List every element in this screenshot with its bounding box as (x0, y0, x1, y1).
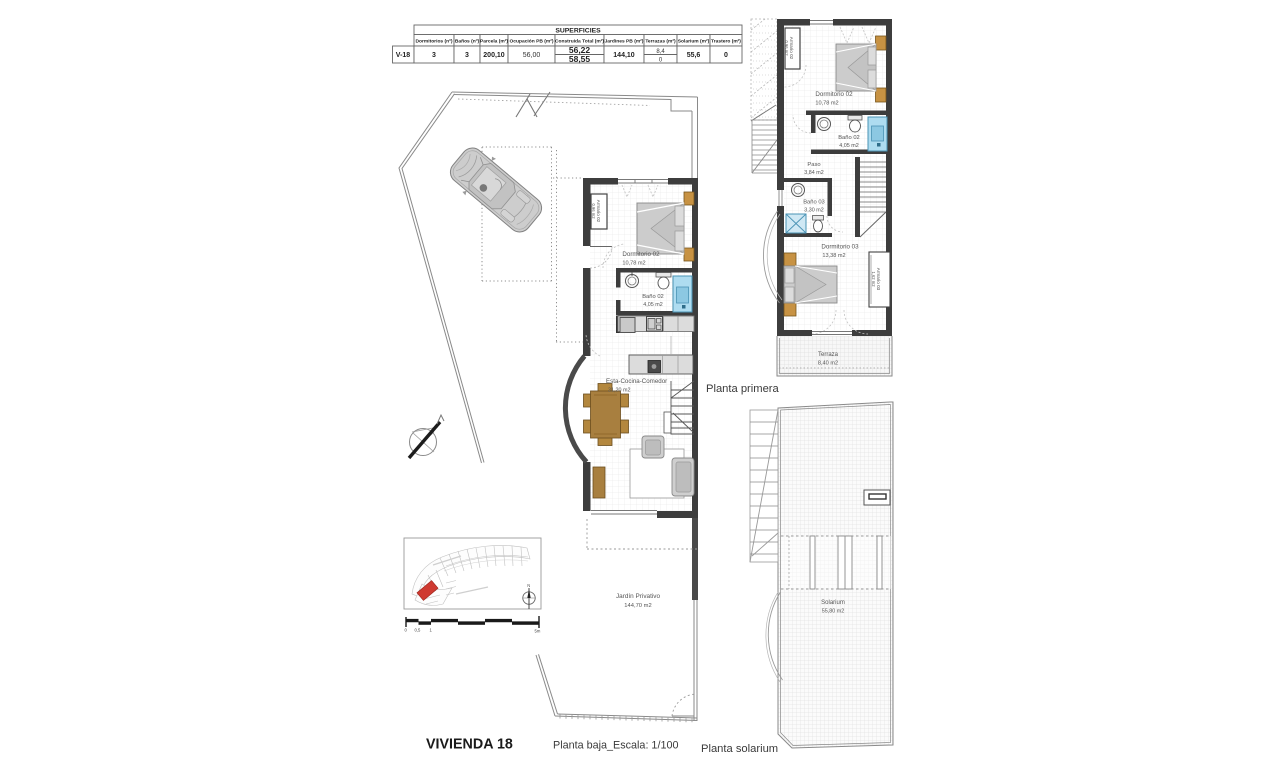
svg-text:Dormitorio 02: Dormitorio 02 (815, 91, 853, 98)
svg-text:8,4: 8,4 (656, 49, 665, 55)
svg-text:3,30 m2: 3,30 m2 (804, 208, 823, 214)
svg-text:Baños (nº): Baños (nº) (455, 39, 480, 45)
svg-text:Baño 03: Baño 03 (803, 200, 825, 206)
svg-text:Paso: Paso (807, 162, 820, 168)
svg-text:3,84 m2: 3,84 m2 (804, 170, 823, 176)
svg-text:Parcela (m²): Parcela (m²) (480, 39, 508, 45)
svg-text:Jardines PB (m²): Jardines PB (m²) (605, 39, 644, 45)
svg-text:56,00: 56,00 (523, 52, 541, 59)
svg-text:0: 0 (724, 52, 728, 59)
svg-text:4,05 m2: 4,05 m2 (643, 302, 662, 308)
svg-text:200,10: 200,10 (483, 52, 505, 59)
svg-text:Planta solarium: Planta solarium (701, 743, 778, 755)
svg-text:Planta baja_Escala: 1/100: Planta baja_Escala: 1/100 (553, 740, 678, 752)
svg-text:Dormitorio 03: Dormitorio 03 (821, 244, 859, 251)
svg-text:Baño 02: Baño 02 (642, 294, 664, 300)
svg-text:Esta-Cocina-Comedor: Esta-Cocina-Comedor (606, 378, 667, 385)
svg-text:Dormitorio 02: Dormitorio 02 (622, 251, 660, 258)
svg-text:Jardín Privativo: Jardín Privativo (616, 593, 660, 600)
svg-text:Dormitorios (nº): Dormitorios (nº) (415, 39, 452, 45)
svg-text:Solarium: Solarium (821, 600, 845, 606)
svg-text:0,5: 0,5 (415, 628, 421, 633)
svg-text:0,96 m2: 0,96 m2 (784, 40, 789, 56)
svg-text:Construida Total (m²): Construida Total (m²) (555, 39, 604, 45)
svg-text:SUPERFICIES: SUPERFICIES (555, 27, 601, 34)
svg-text:Trastero (m²): Trastero (m²) (711, 39, 741, 45)
svg-text:55,6: 55,6 (687, 52, 701, 59)
svg-text:VIVIENDA 18: VIVIENDA 18 (426, 737, 513, 753)
svg-text:5m: 5m (535, 629, 541, 634)
svg-text:55,80 m2: 55,80 m2 (822, 609, 844, 615)
svg-text:58,55: 58,55 (569, 54, 591, 64)
svg-text:Baño 02: Baño 02 (838, 135, 860, 141)
svg-text:V-18: V-18 (396, 52, 411, 59)
svg-text:0,96 m2: 0,96 m2 (591, 203, 596, 219)
svg-text:Planta primera: Planta primera (706, 383, 780, 395)
svg-text:31,20 m2: 31,20 m2 (608, 388, 630, 394)
svg-text:10,78 m2: 10,78 m2 (622, 261, 645, 267)
svg-text:3: 3 (432, 52, 436, 59)
svg-text:N: N (527, 583, 530, 588)
svg-text:10,78 m2: 10,78 m2 (815, 101, 838, 107)
svg-text:4,05 m2: 4,05 m2 (839, 143, 858, 149)
svg-text:Ocupación PB (m²): Ocupación PB (m²) (509, 39, 553, 45)
svg-text:144,70 m2: 144,70 m2 (624, 603, 651, 609)
svg-text:Terraza: Terraza (818, 352, 839, 358)
svg-text:1,62 m2: 1,62 m2 (871, 271, 876, 287)
svg-text:8,40 m2: 8,40 m2 (818, 361, 838, 367)
svg-text:Terrazas (m²): Terrazas (m²) (645, 39, 676, 45)
svg-text:144,10: 144,10 (613, 52, 635, 59)
svg-text:Solarium (m²): Solarium (m²) (678, 39, 710, 45)
svg-text:3: 3 (465, 52, 469, 59)
svg-text:13,38 m2: 13,38 m2 (822, 253, 845, 259)
